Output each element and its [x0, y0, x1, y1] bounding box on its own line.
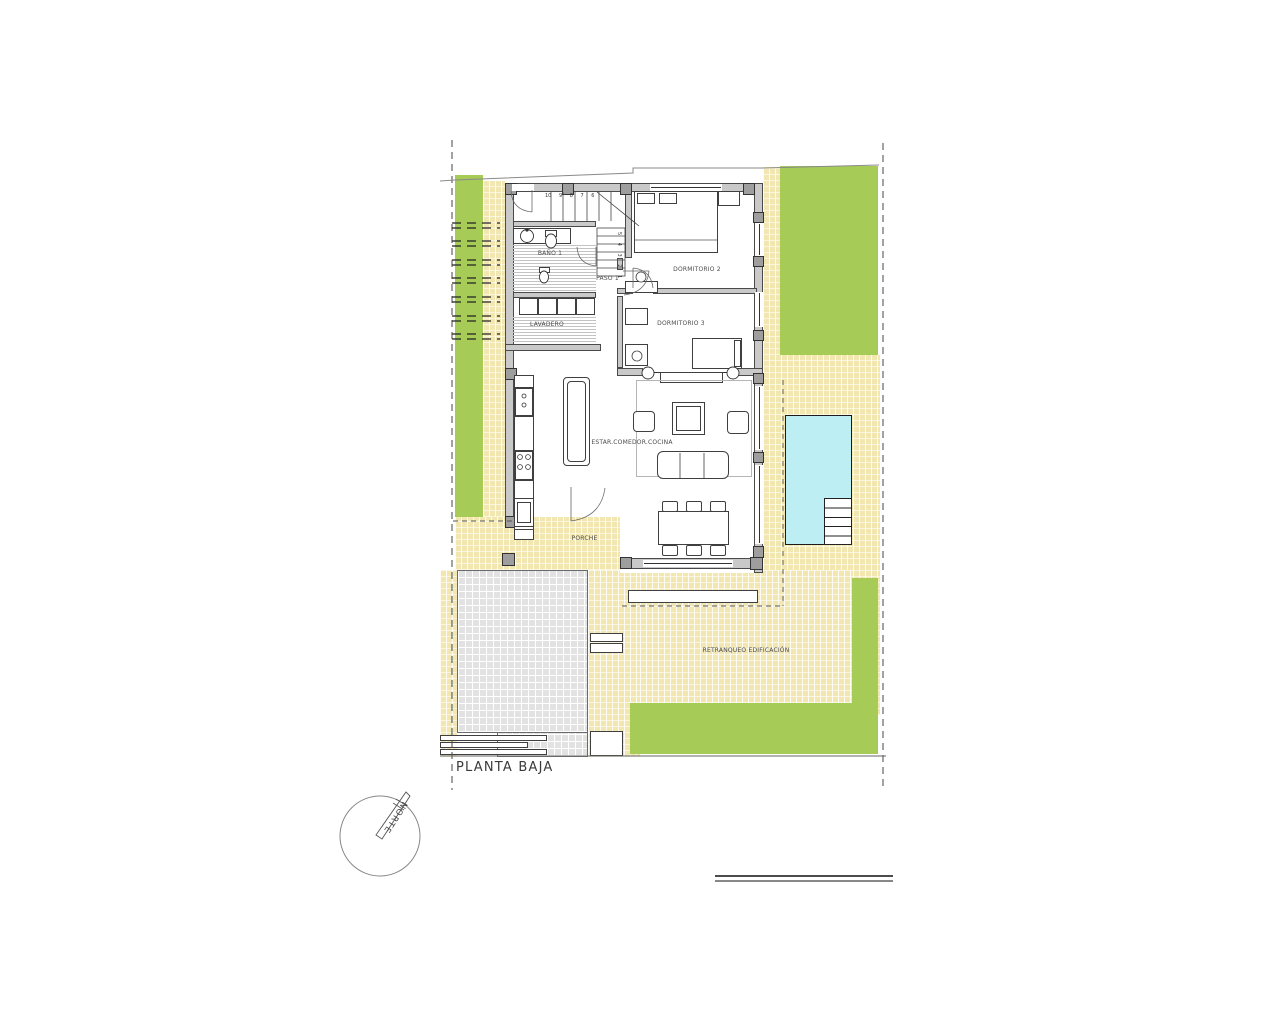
dresser-dormitorio2: [718, 191, 740, 206]
entry-door-opening: [512, 184, 534, 191]
north-arrow-ticks: [393, 799, 407, 810]
label-estar: ESTAR.COMEDOR.COCINA: [582, 440, 682, 446]
toilet-tank: [545, 230, 557, 237]
pillar: [753, 330, 764, 341]
terrace-strip-bottomleft: [440, 570, 457, 757]
label-dormitorio3: DORMITORIO 3: [652, 321, 710, 327]
north-arrow-icon: [376, 792, 410, 839]
garden-band-bottom: [630, 703, 852, 754]
kitchen-sink-basin: [517, 502, 531, 523]
label-porche: PORCHE: [562, 536, 607, 542]
gate-bar: [440, 749, 547, 755]
porch-pillar: [502, 553, 515, 566]
wall-paso: [617, 296, 623, 368]
pillar: [743, 183, 755, 195]
window: [650, 184, 722, 191]
armchair: [727, 411, 749, 434]
label-paso: PASO 1: [585, 276, 630, 282]
window: [643, 560, 733, 567]
laundry-cabinet: [519, 298, 538, 315]
window: [755, 223, 763, 256]
pillow: [637, 193, 655, 204]
pillar: [620, 183, 632, 195]
compass-label: NORTE: [381, 799, 409, 835]
gate-bar: [440, 735, 547, 741]
pool-steps: [824, 498, 852, 545]
paving-driveway: [457, 570, 588, 733]
bathroom-counter: [513, 228, 571, 244]
laundry-cabinet: [576, 298, 595, 315]
wall-stair-dorm2: [625, 191, 632, 258]
stair-numbers-upper: 10 9 8 7 6: [545, 194, 594, 199]
kitchen-hob: [514, 450, 534, 481]
dining-chair: [686, 501, 702, 512]
page-title: PLANTA BAJA: [456, 761, 553, 774]
pillar: [753, 256, 764, 267]
label-dormitorio2: DORMITORIO 2: [666, 267, 728, 273]
desk-dormitorio3: [625, 344, 648, 366]
laundry-cabinet: [538, 298, 557, 315]
label-bano1: BAÑO 1: [520, 251, 580, 257]
terrace-strip-topright: [763, 167, 780, 355]
compass: NORTE: [340, 792, 420, 876]
toilet-tank: [539, 267, 550, 273]
terrace-step: [590, 633, 623, 642]
garden-topright: [780, 166, 878, 355]
dining-chair: [710, 545, 726, 556]
kitchen-cabinet: [514, 529, 534, 540]
pillar: [750, 557, 763, 570]
wall-bath-top: [513, 221, 596, 227]
sofa: [657, 451, 729, 479]
wall-dorm2-bot: [653, 288, 757, 294]
terrace-step: [590, 643, 623, 653]
stair-numbers-lower: 5 4 3 2 1: [616, 232, 621, 280]
garden-strip-right: [852, 578, 878, 754]
dining-chair: [662, 545, 678, 556]
terrace-landing: [590, 731, 623, 756]
kitchen-appliance: [514, 387, 534, 417]
label-lavadero: LAVADERO: [516, 322, 578, 328]
pillar: [620, 557, 632, 569]
pillar: [753, 373, 764, 384]
dining-chair: [686, 545, 702, 556]
kitchen-island-top: [567, 381, 586, 462]
floor-plan-canvas: NORTE BAÑO 1 PASO 1 LAVADERO DORMITORIO …: [0, 0, 1280, 1024]
dining-table: [658, 511, 729, 545]
coffee-table-top: [676, 406, 701, 431]
wall-dorm3-bot: [617, 368, 643, 376]
pillar: [753, 452, 764, 463]
window: [755, 465, 763, 544]
laundry-cabinet: [557, 298, 576, 315]
pillow: [659, 193, 677, 204]
pillar: [753, 212, 764, 223]
porch-terrace: [455, 517, 620, 570]
gate-bar: [440, 742, 528, 748]
exterior-step: [628, 590, 758, 603]
dining-chair: [710, 501, 726, 512]
desk-dormitorio2: [625, 281, 658, 293]
window: [755, 292, 763, 327]
path-strip-left: [483, 181, 505, 517]
garden-strip-left: [455, 175, 483, 517]
label-retranqueo: RETRANQUEO EDIFICACIÓN: [697, 648, 795, 654]
pillow: [734, 340, 741, 367]
dresser-dormitorio3: [625, 308, 648, 325]
compass-circle: [340, 796, 420, 876]
dining-chair: [662, 501, 678, 512]
wall-laundry-bot: [505, 344, 601, 351]
armchair: [633, 411, 655, 432]
window: [755, 386, 763, 450]
